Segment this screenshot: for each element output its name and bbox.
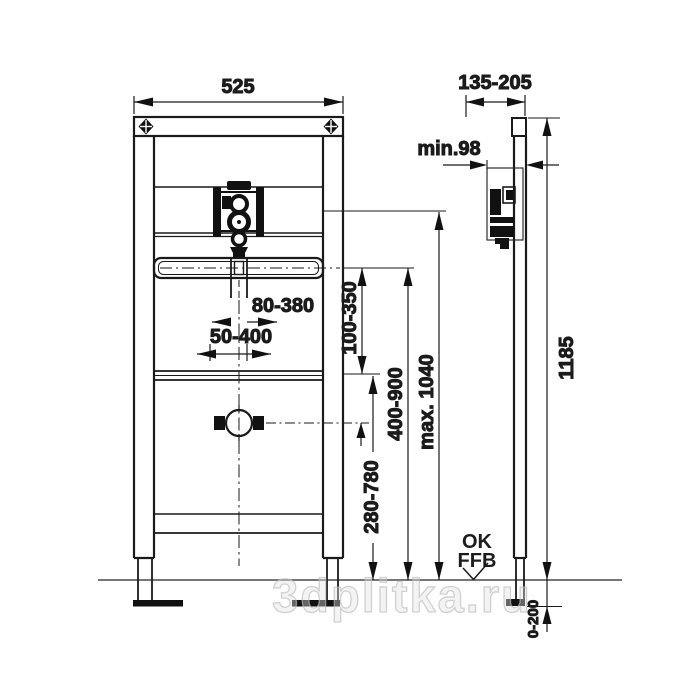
watermark: 3dplitka.ru (272, 569, 532, 622)
dimension-width-525: 525 (134, 76, 343, 114)
dim-100-350-label: 100-350 (339, 281, 361, 354)
dim-280-780-label: 280-780 (361, 460, 383, 533)
corner-screw-right-icon (324, 119, 339, 135)
dimension-80-380: 80-380 (212, 295, 314, 327)
drawing-canvas: 525 80-380 50-400 100-350 280-780 (0, 0, 700, 700)
dimension-280-780: 280-780 (357, 376, 384, 580)
dimension-depth-135-205: 135-205 (458, 72, 531, 117)
front-width-label: 525 (221, 76, 254, 98)
flush-valve-assembly-side (487, 168, 523, 249)
side-height-label: 1185 (556, 336, 578, 379)
dimension-400-900: 400-900 (385, 268, 413, 580)
dimension-50-400: 50-400 (197, 326, 272, 361)
dim-max-1040-label: max. 1040 (416, 354, 438, 450)
mounting-crossbar (154, 258, 340, 278)
min-clearance-label: min.98 (417, 138, 480, 160)
dimension-min-98: min.98 (417, 138, 559, 170)
dimension-max-1040: max. 1040 (416, 212, 444, 580)
side-depth-label: 135-205 (458, 72, 531, 94)
dimension-height-1185: 1185 (528, 118, 578, 580)
dim-400-900-label: 400-900 (385, 367, 407, 440)
corner-screw-left-icon (139, 119, 154, 135)
flush-valve-assembly-front (213, 181, 264, 258)
fixture-width-label: 50-400 (210, 326, 272, 348)
installation-frame-technical-drawing: 525 80-380 50-400 100-350 280-780 (0, 0, 700, 700)
flush-pipe-offset-label: 80-380 (252, 295, 314, 317)
